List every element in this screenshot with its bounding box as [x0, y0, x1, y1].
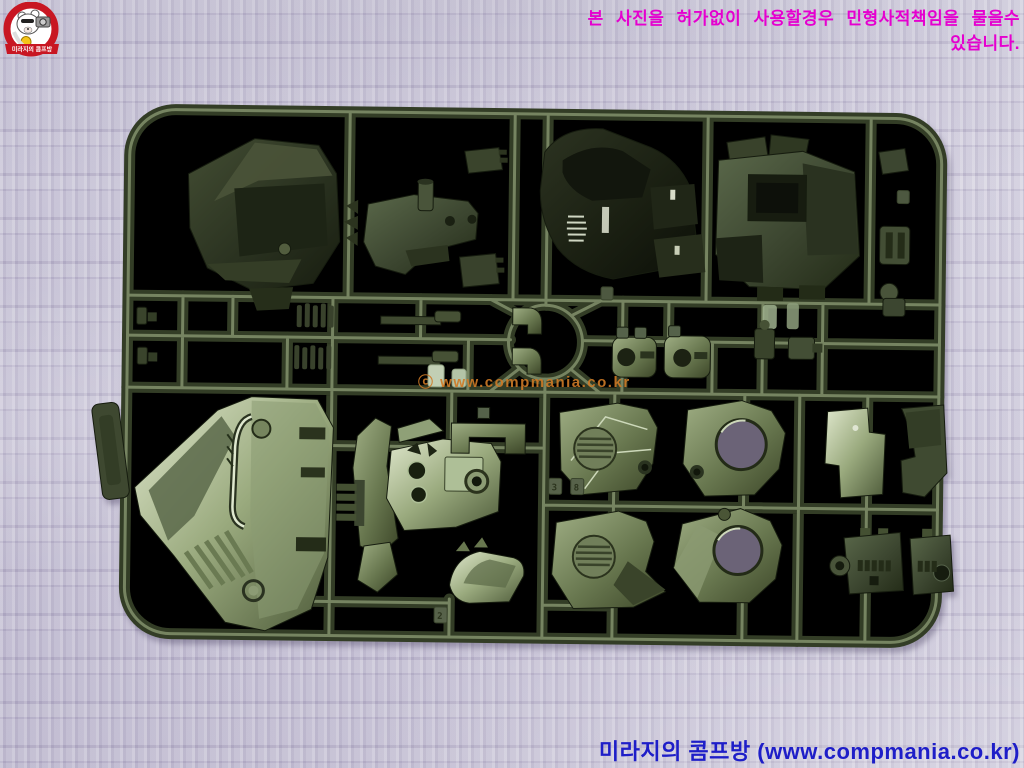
- photo-model-kit-sprue: 3 8 2: [0, 0, 1024, 768]
- tag-number: 3: [552, 483, 558, 493]
- part-bracket-right: [909, 529, 954, 596]
- tag-number: 8: [574, 484, 580, 494]
- footer-site-text: 미라지의 콤프방 (www.compmania.co.kr): [599, 734, 1020, 766]
- copyright-warning-text: 본 사진을 허가없이 사용할경우 민형사적책임을 물을수 있습니다.: [560, 4, 1020, 54]
- center-watermark-text: ⓒ www.compmania.co.kr: [418, 371, 631, 392]
- tag-number: 2: [437, 612, 443, 622]
- site-logo: 미라지의 콤프방: [2, 2, 62, 60]
- logo-banner-text: 미라지의 콤프방: [12, 46, 53, 54]
